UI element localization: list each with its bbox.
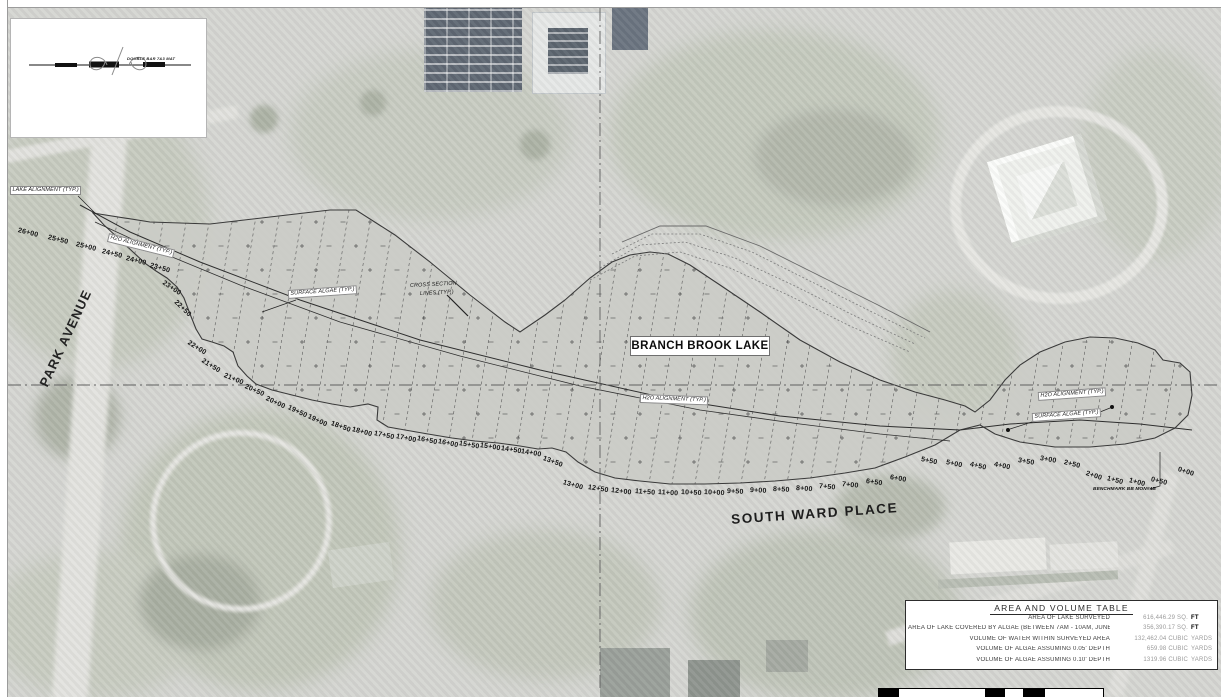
table-row-unit: YARDS (1188, 646, 1215, 652)
area-volume-table: AREA AND VOLUME TABLE AREA OF LAKE SURVE… (905, 600, 1218, 670)
station-label: 10+50 (681, 489, 702, 497)
station-label: 19+00 (307, 413, 329, 428)
station-label: 3+00 (1039, 455, 1057, 465)
scale-bar-segment (1045, 689, 1103, 697)
table-row-unit: YARDS (1188, 636, 1215, 642)
station-label: 26+00 (17, 227, 39, 239)
station-label: 5+00 (945, 459, 963, 469)
station-label: 17+00 (395, 433, 417, 444)
station-label: 9+50 (727, 488, 744, 496)
scale-bar-segment (985, 689, 1005, 697)
station-label: 13+00 (562, 479, 584, 491)
station-label: 19+50 (287, 404, 309, 419)
station-label: 8+00 (796, 485, 813, 493)
scale-bar-segment (1005, 689, 1023, 697)
station-label: 23+00 (161, 280, 182, 297)
station-label: 12+50 (587, 484, 609, 494)
area-volume-table-rows: AREA OF LAKE SURVEYED616,446.29 SQ.FTARE… (908, 615, 1215, 667)
station-label: 22+00 (186, 340, 207, 357)
map-annotation: H2O ALIGNMENT (TYP.) (640, 394, 709, 405)
map-annotation: CROSS SECTION (410, 281, 457, 289)
station-label: 16+50 (416, 435, 438, 446)
station-label: 2+00 (1085, 470, 1103, 482)
map-annotation: LAKE ALIGNMENT (TYP.) (10, 186, 81, 195)
benchmark-label: BENCHMARK BB MON#4B (1093, 487, 1156, 492)
station-label: 6+50 (866, 478, 883, 487)
map-annotation: SURFACE ALGAE (TYP.) (1032, 408, 1102, 422)
station-label: 4+50 (969, 461, 987, 472)
station-label: 15+50 (458, 440, 480, 450)
table-row-label: VOLUME OF ALGAE ASSUMING 0.10' DEPTH (908, 657, 1110, 663)
title-flourish-box: DOUBLE BAR 7&3 MAT (10, 18, 207, 138)
station-label: 8+50 (773, 486, 790, 494)
station-label: 7+50 (819, 483, 836, 491)
area-volume-table-title: AREA AND VOLUME TABLE (908, 602, 1215, 615)
station-label: 9+00 (750, 487, 767, 495)
station-label: 17+50 (373, 430, 395, 441)
survey-drawing-canvas: PARK AVENUE SOUTH WARD PLACE BRANCH BROO… (0, 0, 1221, 697)
table-row-value: 1319.96 CUBIC (1110, 657, 1188, 663)
station-label: 2+50 (1063, 459, 1081, 470)
station-label: 14+00 (520, 448, 542, 458)
table-row-value: 132,462.04 CUBIC (1110, 636, 1188, 642)
street-label-south-ward-place: SOUTH WARD PLACE (731, 500, 899, 527)
station-label: 14+50 (500, 445, 522, 455)
station-label: 18+50 (330, 420, 352, 434)
table-row: VOLUME OF WATER WITHIN SURVEYED AREA132,… (908, 636, 1215, 646)
station-label: 11+50 (635, 488, 656, 497)
sheet-margin-top (0, 0, 1221, 8)
station-label: 22+50 (173, 299, 193, 318)
station-label: 18+00 (351, 426, 373, 438)
station-label: 12+00 (611, 487, 632, 496)
table-row-value: 616,446.29 SQ. (1110, 615, 1188, 621)
flourish-caption: DOUBLE BAR 7&3 MAT (127, 56, 175, 61)
station-label: 13+50 (542, 455, 564, 469)
table-row-value: 659.98 CUBIC (1110, 646, 1188, 652)
station-label: 21+00 (223, 372, 245, 386)
station-label: 16+00 (437, 438, 459, 449)
table-row-value: 356,390.17 SQ. (1110, 625, 1188, 631)
map-annotation: H2O ALIGNMENT (TYP.) (1038, 387, 1107, 401)
scale-bar-segment (879, 689, 899, 697)
station-label: 15+00 (479, 442, 501, 452)
station-label: 11+00 (658, 489, 679, 497)
compass-flourish (11, 19, 204, 135)
station-label: 1+50 (1106, 475, 1124, 486)
station-label: 23+50 (149, 262, 171, 274)
table-row: AREA OF LAKE SURVEYED616,446.29 SQ.FT (908, 615, 1215, 625)
table-row-label: AREA OF LAKE COVERED BY ALGAE (BETWEEN 7… (908, 625, 1110, 631)
table-row: VOLUME OF ALGAE ASSUMING 0.10' DEPTH1319… (908, 657, 1215, 667)
station-label: 24+50 (101, 248, 123, 260)
station-label: 4+00 (993, 461, 1011, 471)
table-row-unit: YARDS (1188, 657, 1215, 663)
table-row: AREA OF LAKE COVERED BY ALGAE (BETWEEN 7… (908, 625, 1215, 635)
table-row-unit: FT (1188, 625, 1215, 631)
station-label: 20+50 (244, 383, 266, 398)
table-row-unit: FT (1188, 615, 1215, 621)
station-label: 5+50 (920, 456, 938, 466)
table-row-label: AREA OF LAKE SURVEYED (908, 615, 1110, 621)
map-annotation: LINES (TYP.) (420, 289, 454, 297)
station-label: 7+00 (842, 481, 859, 490)
graphic-scale-bar (878, 688, 1104, 697)
station-label: 0+50 (1150, 476, 1168, 487)
lake-name-label: BRANCH BROOK LAKE (630, 336, 770, 356)
station-label: 0+00 (1177, 466, 1195, 478)
station-label: 21+50 (200, 358, 221, 375)
station-label: 10+00 (704, 489, 725, 497)
station-label: 3+50 (1017, 457, 1035, 467)
street-label-park-avenue: PARK AVENUE (36, 287, 94, 389)
scale-bar-segment (1023, 689, 1045, 697)
table-row-label: VOLUME OF WATER WITHIN SURVEYED AREA (908, 636, 1110, 642)
table-row: VOLUME OF ALGAE ASSUMING 0.05' DEPTH659.… (908, 646, 1215, 656)
sheet-margin-left (0, 0, 8, 697)
station-label: 20+00 (265, 395, 287, 410)
station-label: 25+00 (75, 241, 97, 253)
table-row-label: VOLUME OF ALGAE ASSUMING 0.05' DEPTH (908, 646, 1110, 652)
station-label: 6+00 (889, 474, 907, 484)
map-annotation: SURFACE ALGAE (TYP.) (288, 285, 358, 299)
scale-bar-segment (899, 689, 985, 697)
station-label: 24+00 (125, 255, 147, 267)
station-label: 25+50 (47, 234, 69, 246)
